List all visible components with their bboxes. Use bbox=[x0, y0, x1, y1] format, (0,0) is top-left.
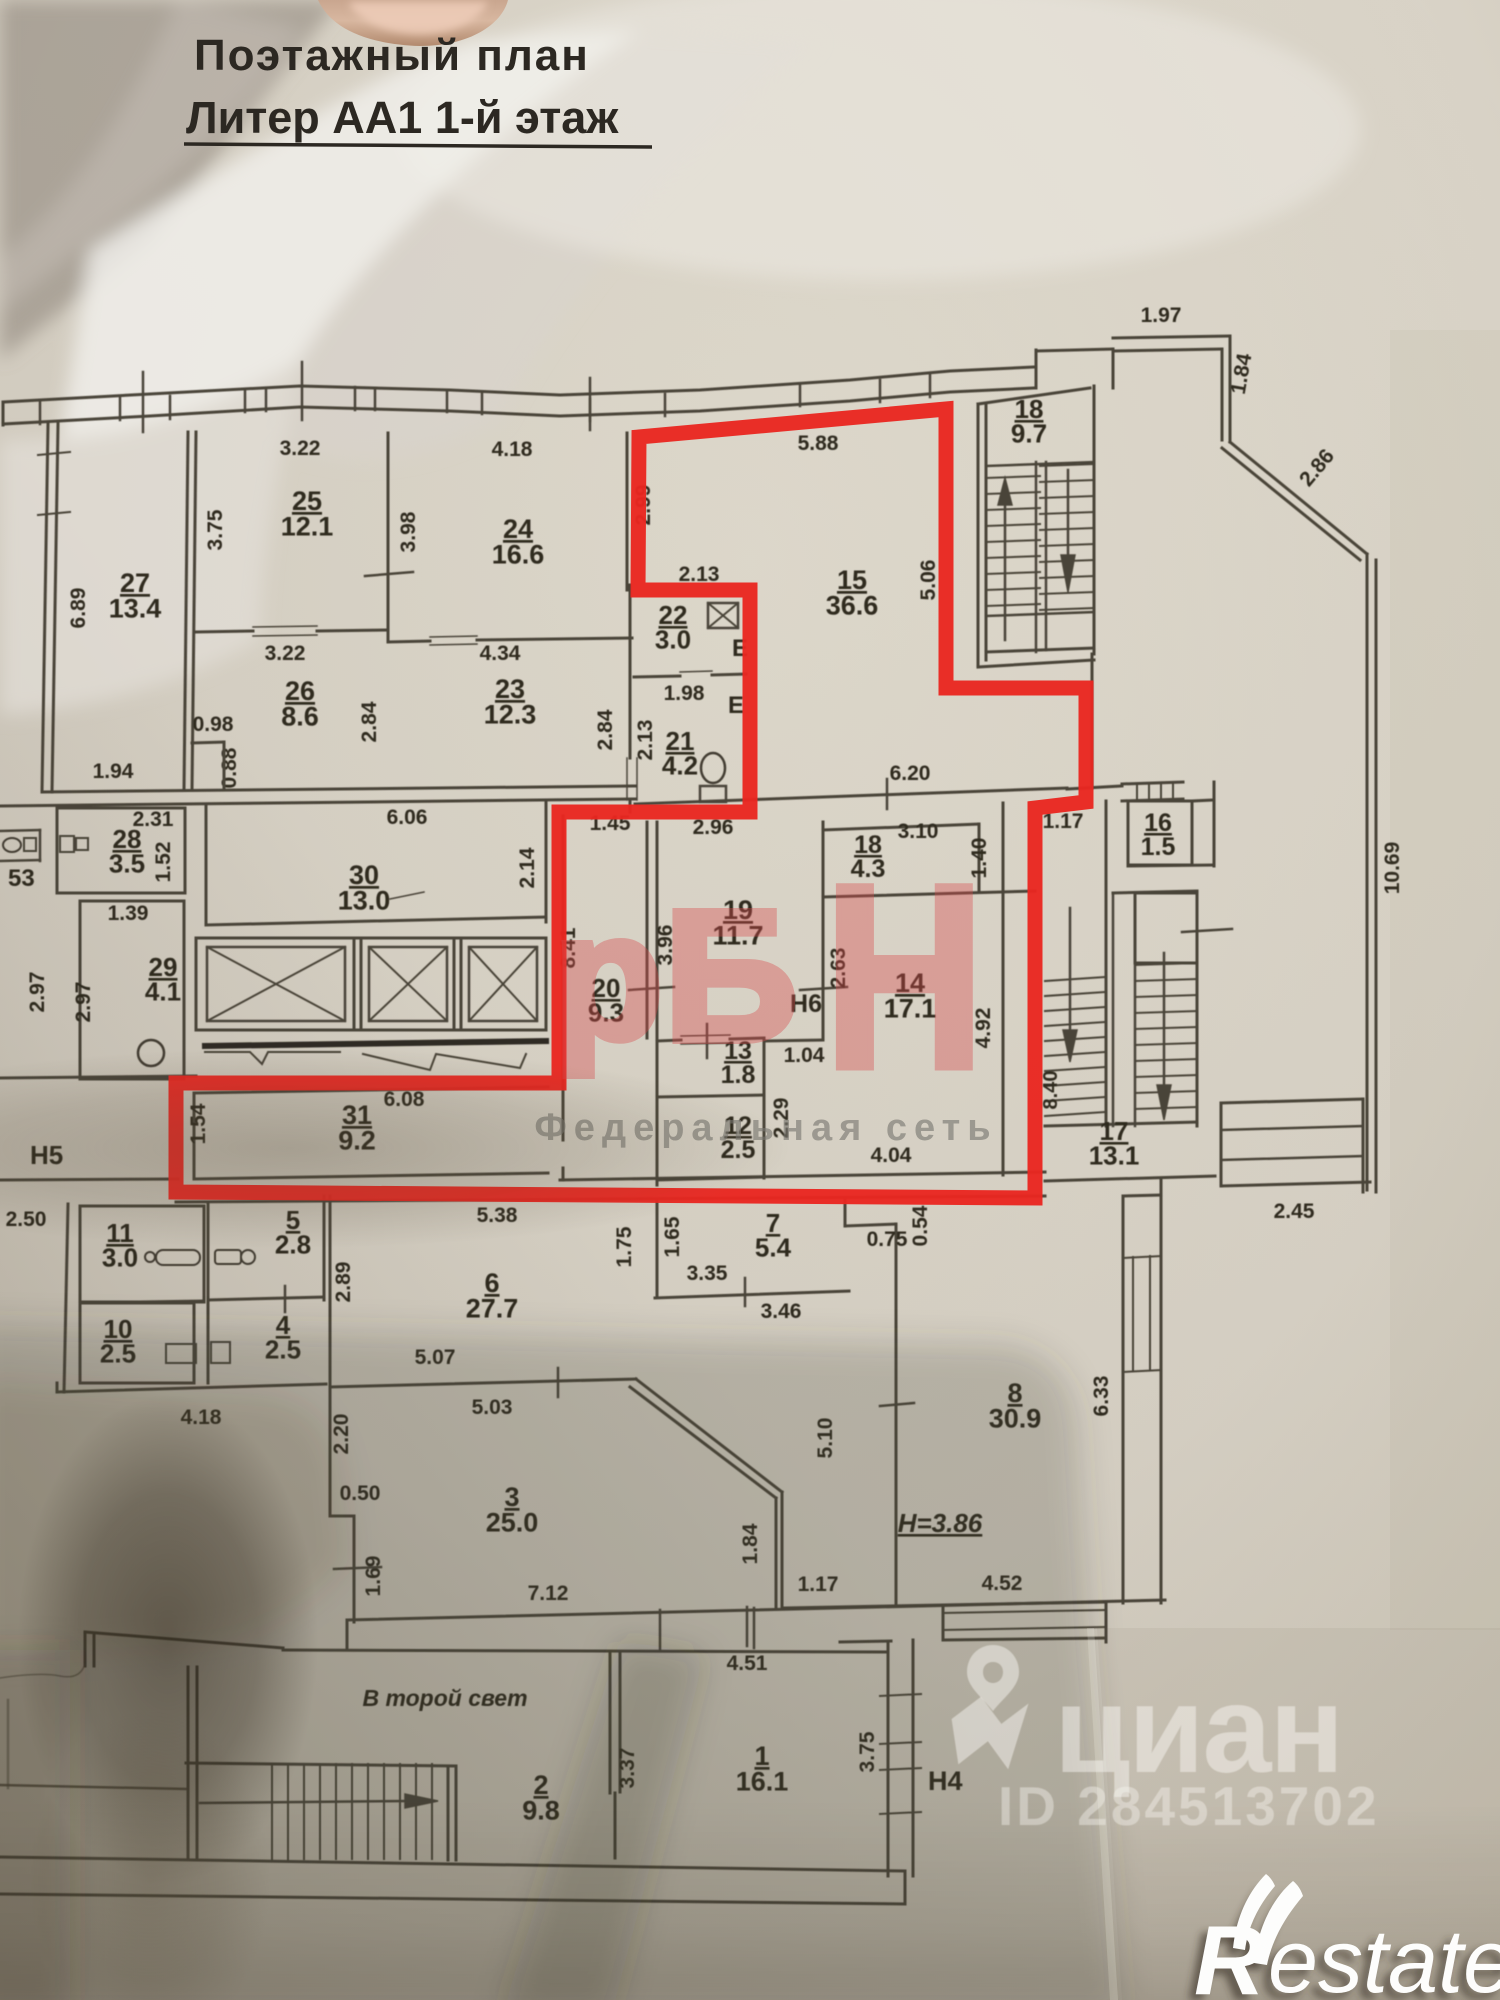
svg-text:3.5: 3.5 bbox=[109, 849, 145, 879]
svg-text:ID 284513702: ID 284513702 bbox=[998, 1775, 1380, 1837]
svg-text:3.0: 3.0 bbox=[102, 1243, 138, 1273]
svg-text:Е: Е bbox=[728, 692, 744, 719]
svg-text:3.22: 3.22 bbox=[280, 437, 321, 460]
svg-text:1.65: 1.65 bbox=[661, 1216, 684, 1257]
svg-text:Поэтажный план: Поэтажный план bbox=[194, 31, 590, 80]
svg-text:1.5: 1.5 bbox=[1141, 833, 1176, 861]
svg-text:53: 53 bbox=[8, 865, 35, 892]
svg-text:16.6: 16.6 bbox=[492, 540, 545, 570]
svg-text:р: р bbox=[554, 877, 663, 1076]
svg-text:2.45: 2.45 bbox=[1274, 1200, 1315, 1223]
svg-text:0.54: 0.54 bbox=[909, 1205, 932, 1246]
svg-text:1.39: 1.39 bbox=[108, 902, 149, 925]
svg-text:0.88: 0.88 bbox=[218, 747, 241, 788]
svg-text:2.97: 2.97 bbox=[72, 982, 95, 1023]
svg-text:2.97: 2.97 bbox=[26, 972, 49, 1013]
svg-text:3.46: 3.46 bbox=[761, 1300, 802, 1323]
svg-text:13.4: 13.4 bbox=[109, 594, 162, 624]
svg-text:Б: Б bbox=[664, 873, 798, 1080]
svg-text:Литер АА1 1-й этаж: Литер АА1 1-й этаж bbox=[186, 92, 619, 143]
svg-text:36.6: 36.6 bbox=[826, 591, 879, 621]
svg-text:3.35: 3.35 bbox=[687, 1262, 728, 1285]
svg-text:4.34: 4.34 bbox=[480, 642, 521, 665]
svg-text:5.06: 5.06 bbox=[917, 560, 940, 601]
svg-text:3.22: 3.22 bbox=[265, 642, 306, 665]
svg-text:12.1: 12.1 bbox=[281, 512, 334, 542]
svg-text:1.52: 1.52 bbox=[152, 842, 175, 883]
svg-text:13.0: 13.0 bbox=[338, 886, 391, 916]
svg-text:2.89: 2.89 bbox=[332, 1262, 355, 1303]
svg-text:6.06: 6.06 bbox=[387, 806, 428, 829]
svg-text:2.84: 2.84 bbox=[358, 701, 381, 742]
svg-text:6.89: 6.89 bbox=[67, 588, 90, 629]
svg-text:1.97: 1.97 bbox=[1141, 304, 1182, 327]
svg-text:9.7: 9.7 bbox=[1011, 419, 1047, 449]
svg-text:8.6: 8.6 bbox=[281, 702, 319, 732]
svg-text:3.98: 3.98 bbox=[397, 511, 420, 552]
svg-text:13.1: 13.1 bbox=[1089, 1141, 1140, 1171]
svg-text:8.40: 8.40 bbox=[1040, 1071, 1062, 1110]
svg-text:5.4: 5.4 bbox=[755, 1233, 792, 1263]
svg-text:0.75: 0.75 bbox=[867, 1228, 908, 1251]
svg-text:3.75: 3.75 bbox=[204, 509, 227, 550]
svg-text:27.7: 27.7 bbox=[466, 1294, 519, 1324]
svg-text:estate: estate bbox=[1268, 1912, 1500, 2000]
svg-text:5.88: 5.88 bbox=[798, 432, 839, 455]
svg-text:12.3: 12.3 bbox=[484, 700, 537, 730]
svg-text:2.14: 2.14 bbox=[516, 847, 539, 888]
svg-text:1.94: 1.94 bbox=[93, 760, 134, 783]
svg-text:2.13: 2.13 bbox=[634, 720, 657, 761]
svg-text:4.2: 4.2 bbox=[662, 751, 698, 781]
svg-text:4.18: 4.18 bbox=[492, 438, 533, 461]
svg-text:R: R bbox=[1194, 1905, 1265, 2000]
svg-text:6.33: 6.33 bbox=[1090, 1376, 1113, 1417]
svg-text:0.98: 0.98 bbox=[193, 713, 234, 736]
svg-text:1.75: 1.75 bbox=[613, 1226, 636, 1267]
svg-text:1.98: 1.98 bbox=[664, 682, 705, 705]
svg-text:6.20: 6.20 bbox=[890, 762, 931, 785]
svg-text:4.1: 4.1 bbox=[145, 977, 181, 1007]
svg-text:Н: Н bbox=[824, 830, 985, 1123]
svg-text:2.84: 2.84 bbox=[594, 709, 617, 750]
svg-text:3.0: 3.0 bbox=[655, 625, 691, 655]
